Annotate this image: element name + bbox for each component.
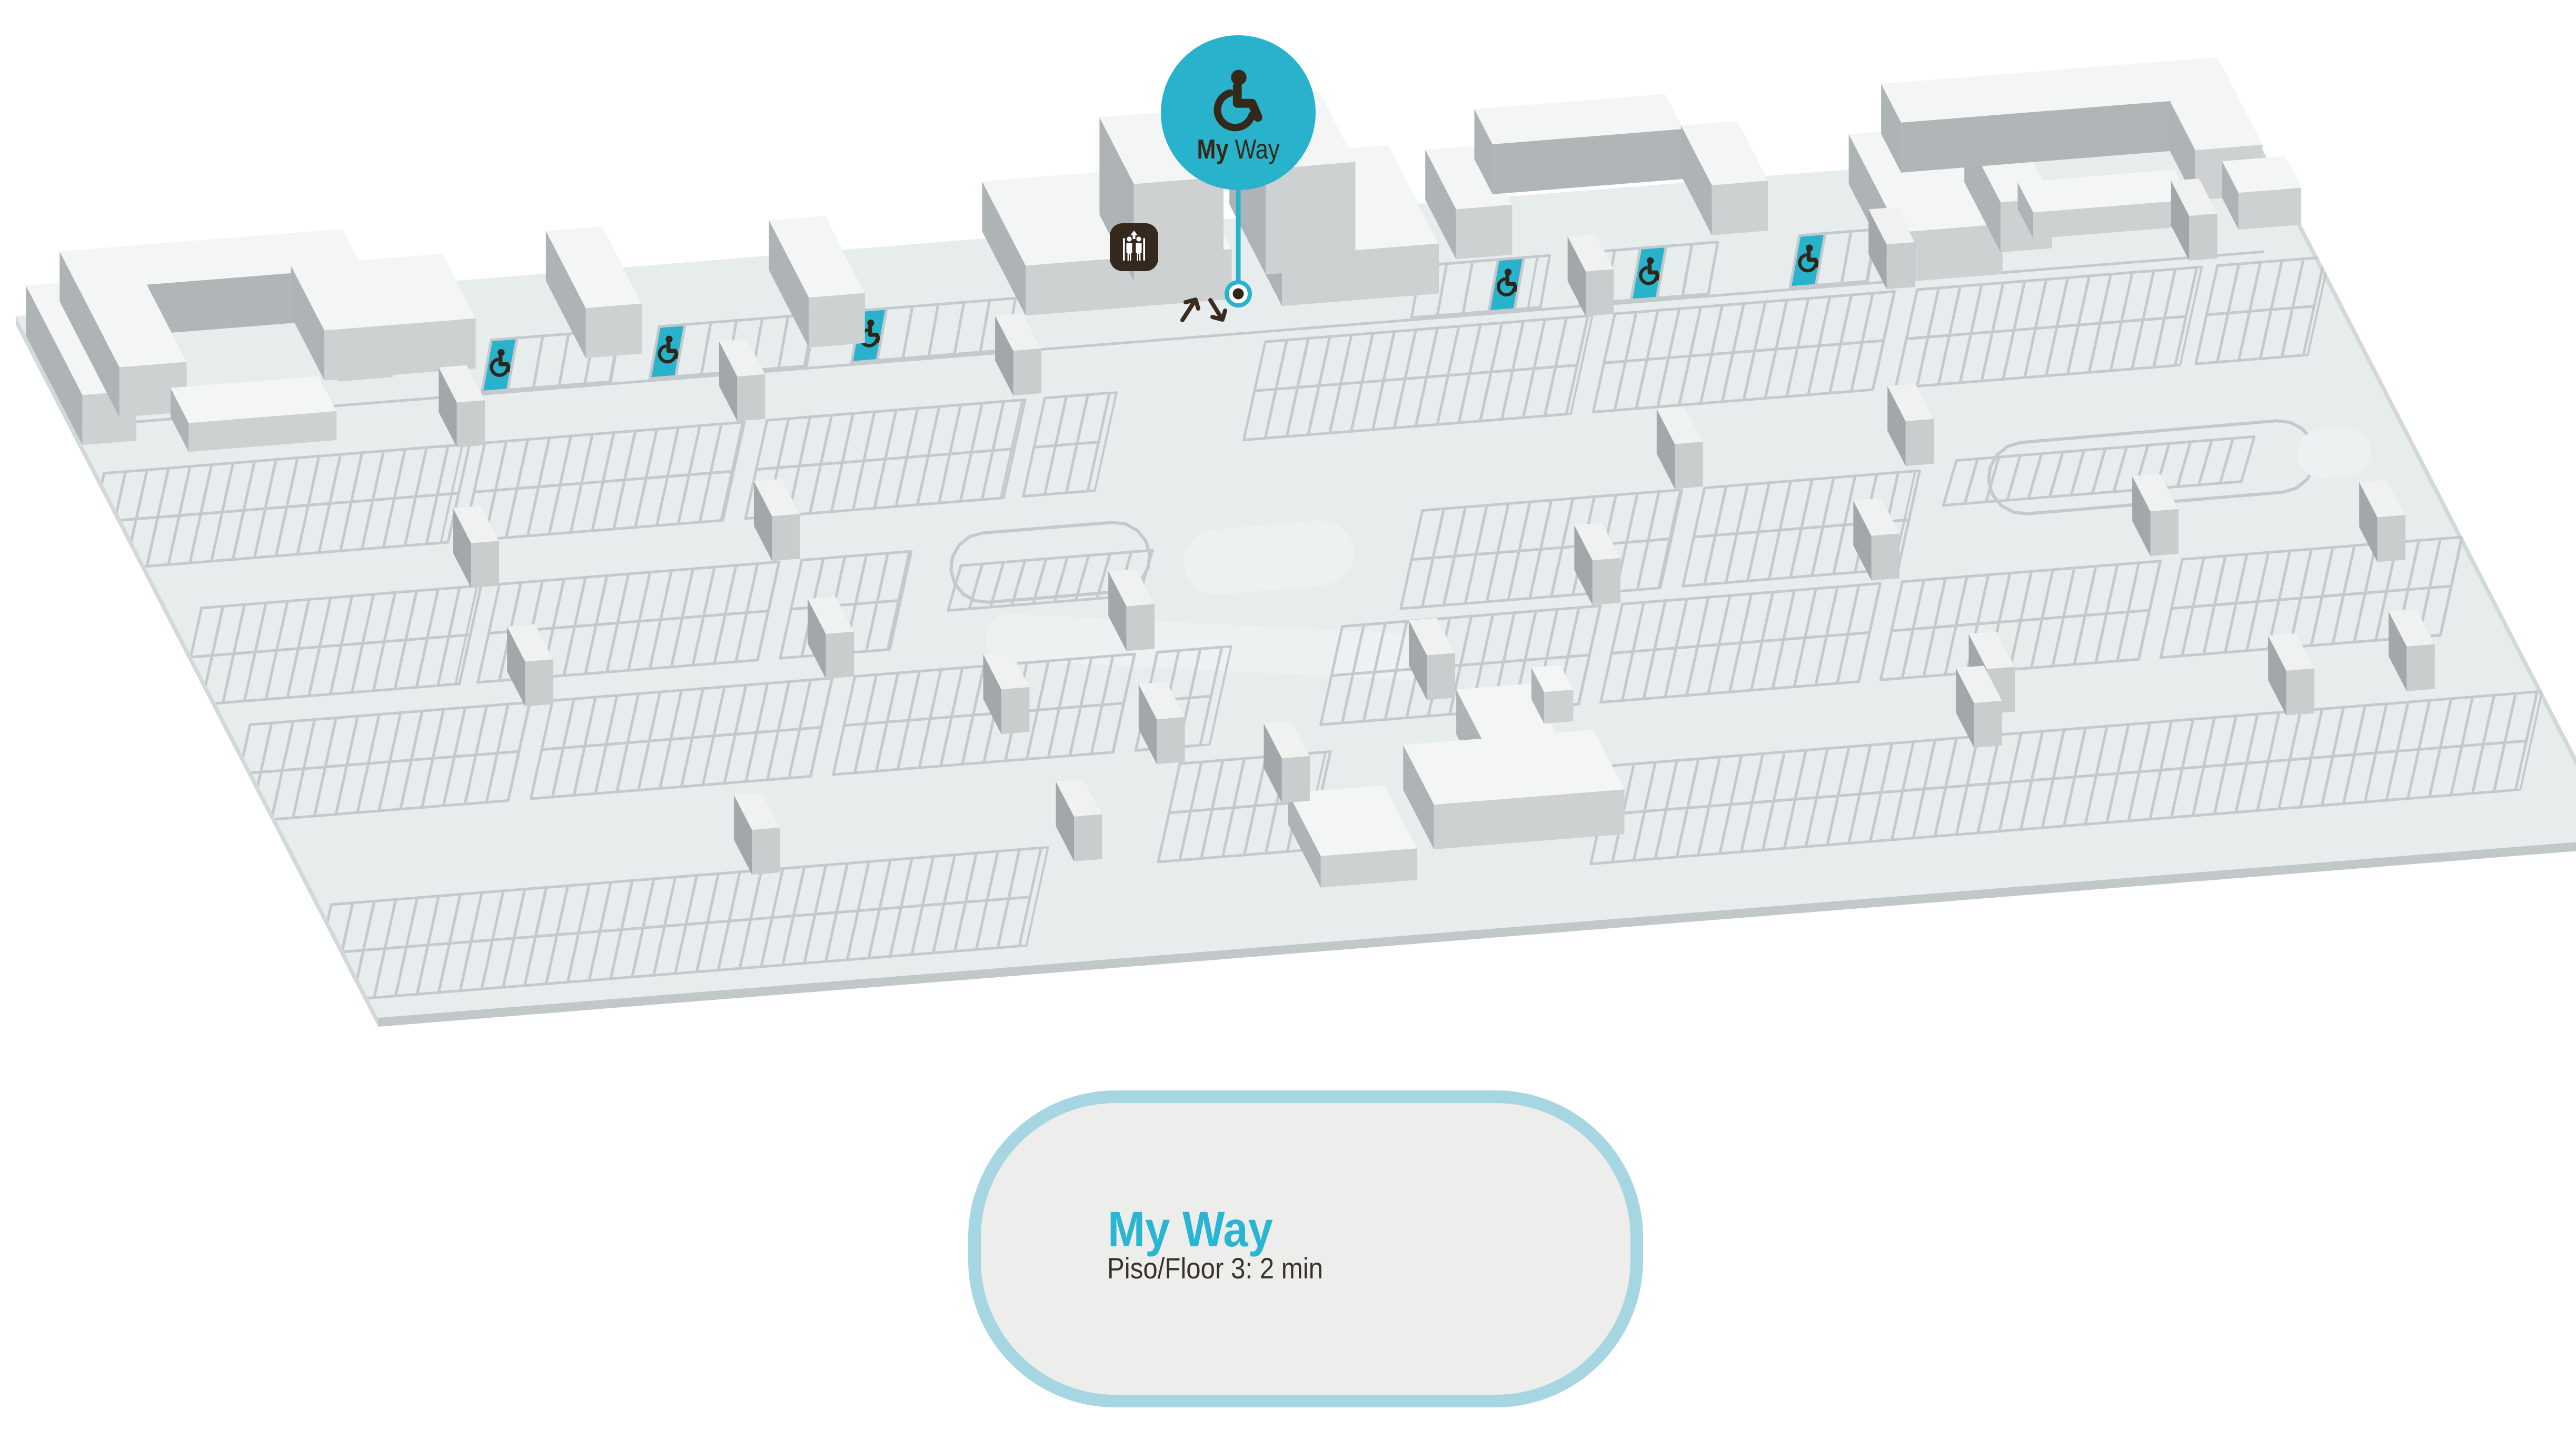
svg-text:Piso/Floor 3: 2 min: Piso/Floor 3: 2 min [1107, 1252, 1323, 1285]
svg-text:My Way: My Way [1197, 134, 1280, 165]
svg-text:My Way: My Way [1108, 1202, 1273, 1257]
